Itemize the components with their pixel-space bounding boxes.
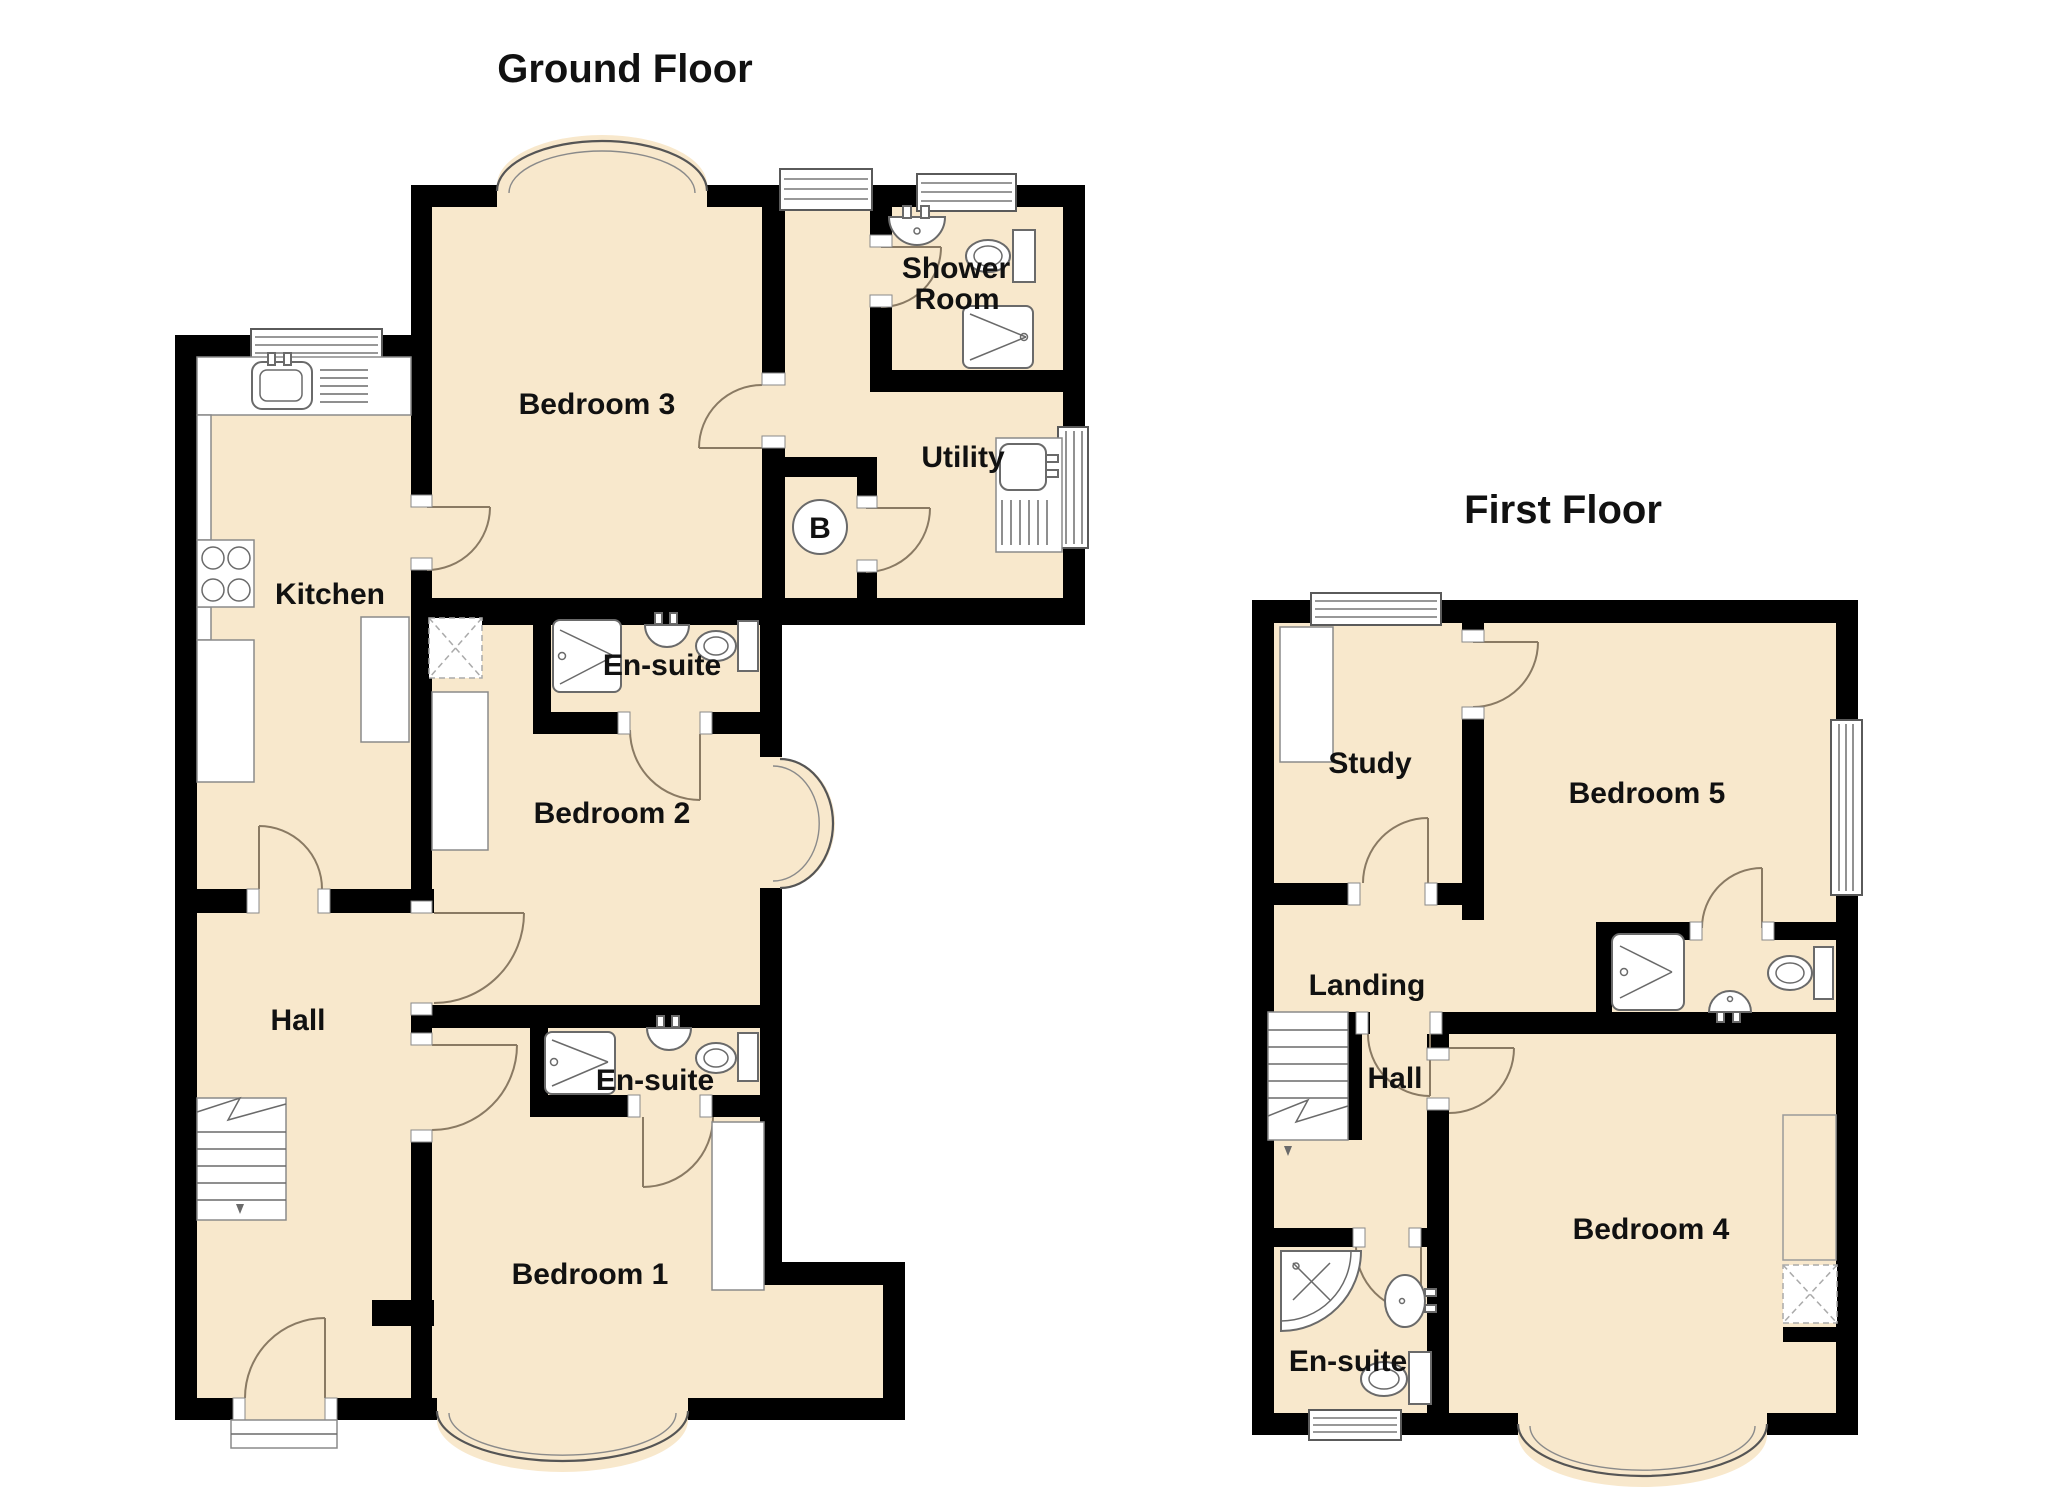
- shower-room-window: [917, 174, 1016, 211]
- shower-tray-icon: [1612, 934, 1684, 1010]
- wardrobe-bedroom1: [712, 1122, 764, 1290]
- floorplan-canvas: Ground Floor: [0, 0, 2048, 1489]
- front-door-step: [231, 1420, 337, 1448]
- boiler-indicator: B: [793, 500, 847, 554]
- room-label-bedroom5: Bedroom 5: [1569, 777, 1726, 810]
- utility-sink-icon: [996, 438, 1062, 552]
- room-label-study: Study: [1328, 747, 1412, 780]
- room-label-shower-room-2: Room: [915, 283, 1000, 316]
- first-floor: First Floor: [1252, 488, 1862, 1487]
- hatched-void-first: [1783, 1265, 1837, 1323]
- room-label-shower-room-1: Shower: [902, 252, 1011, 285]
- room-label-ensuite4: En-suite: [1289, 1345, 1407, 1378]
- ensuite-window: [1309, 1410, 1401, 1440]
- boiler-label: B: [809, 512, 831, 545]
- floorplan-svg: Ground Floor: [0, 0, 2048, 1489]
- bedroom5-window: [1831, 720, 1862, 895]
- study-window: [1311, 593, 1441, 625]
- closet-study: [1280, 627, 1333, 762]
- hatched-void-ground: [429, 618, 482, 678]
- counter: [361, 617, 409, 742]
- room-label-landing: Landing: [1309, 969, 1426, 1002]
- room-label-ensuite1: En-suite: [596, 1064, 714, 1097]
- counter: [197, 607, 211, 640]
- wardrobe-bedroom4: [1783, 1115, 1836, 1260]
- staircase-ground: [197, 1098, 286, 1220]
- room-label-ensuite2: En-suite: [603, 649, 721, 682]
- room-label-kitchen: Kitchen: [275, 578, 385, 611]
- ground-floor-title: Ground Floor: [497, 47, 753, 91]
- room-label-bedroom2: Bedroom 2: [534, 797, 691, 830]
- hob-icon: [197, 540, 254, 607]
- room-label-hall-first: Hall: [1367, 1062, 1422, 1095]
- room-label-hall: Hall: [270, 1004, 325, 1037]
- wardrobe-bedroom2: [432, 692, 488, 850]
- room-label-bedroom3: Bedroom 3: [519, 388, 676, 421]
- counter: [197, 415, 211, 540]
- counter: [197, 640, 254, 782]
- first-floor-title: First Floor: [1464, 488, 1662, 532]
- ground-floor: Ground Floor: [175, 47, 1088, 1472]
- staircase-first: [1268, 1012, 1348, 1156]
- rear-window-left: [780, 169, 872, 210]
- room-label-bedroom4: Bedroom 4: [1573, 1213, 1730, 1246]
- room-label-bedroom1: Bedroom 1: [512, 1258, 669, 1291]
- room-label-utility: Utility: [921, 441, 1005, 474]
